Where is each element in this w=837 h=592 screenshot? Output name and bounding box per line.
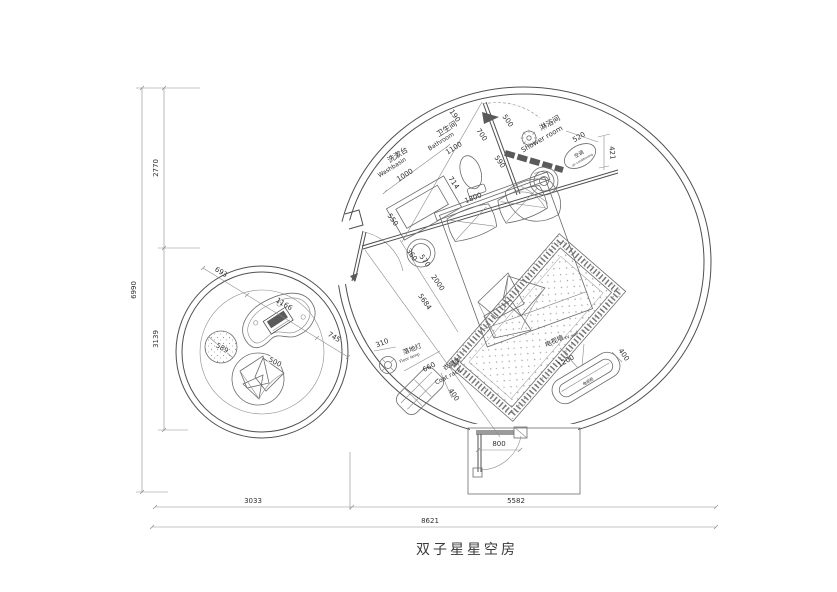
dim-6990: 6990 xyxy=(130,281,138,299)
pillow xyxy=(445,201,499,244)
dim-5582: 5582 xyxy=(507,497,525,505)
ac-unit: 空调 air conditioning xyxy=(560,138,600,173)
shower-glass-partition xyxy=(505,153,563,170)
dim-570: 570 xyxy=(418,253,432,269)
dim-421: 421 xyxy=(607,146,616,160)
entry-threshold xyxy=(476,430,514,435)
lounge-room-walls xyxy=(176,266,348,438)
dim-3139: 3139 xyxy=(152,330,160,348)
dim-700: 700 xyxy=(475,127,489,143)
dim-660: 660 xyxy=(421,361,437,374)
bedside-rug xyxy=(446,234,625,422)
dim-520: 520 xyxy=(571,130,587,144)
dim-550: 550 xyxy=(386,212,400,228)
dim-1100: 1100 xyxy=(444,140,463,156)
toilet xyxy=(456,153,487,197)
dim-3033: 3033 xyxy=(244,497,262,505)
door-swing-arc xyxy=(364,232,403,271)
dim-310: 310 xyxy=(375,337,390,349)
dim-8621: 8621 xyxy=(421,517,439,525)
dim-714: 714 xyxy=(447,175,462,191)
dim-360: 360 xyxy=(405,247,419,263)
drawing-title: 双子星星空房 xyxy=(416,542,518,558)
dim-800: 800 xyxy=(492,440,505,448)
dim-5684: 5684 xyxy=(416,292,433,312)
dim-2770: 2770 xyxy=(152,159,160,177)
dim-1000: 1000 xyxy=(395,167,414,183)
dim-2000: 2000 xyxy=(429,273,446,292)
dim-693: 693 xyxy=(213,265,229,279)
dim-coat-400: 400 xyxy=(447,387,461,403)
floor-plan-sheet: 空调 air conditioning xyxy=(0,0,837,592)
dim-590: 590 xyxy=(493,154,507,170)
floor-plan-drawing: 空调 air conditioning xyxy=(0,0,837,592)
dim-500: 500 xyxy=(501,113,515,129)
entry-vestibule xyxy=(468,424,580,494)
